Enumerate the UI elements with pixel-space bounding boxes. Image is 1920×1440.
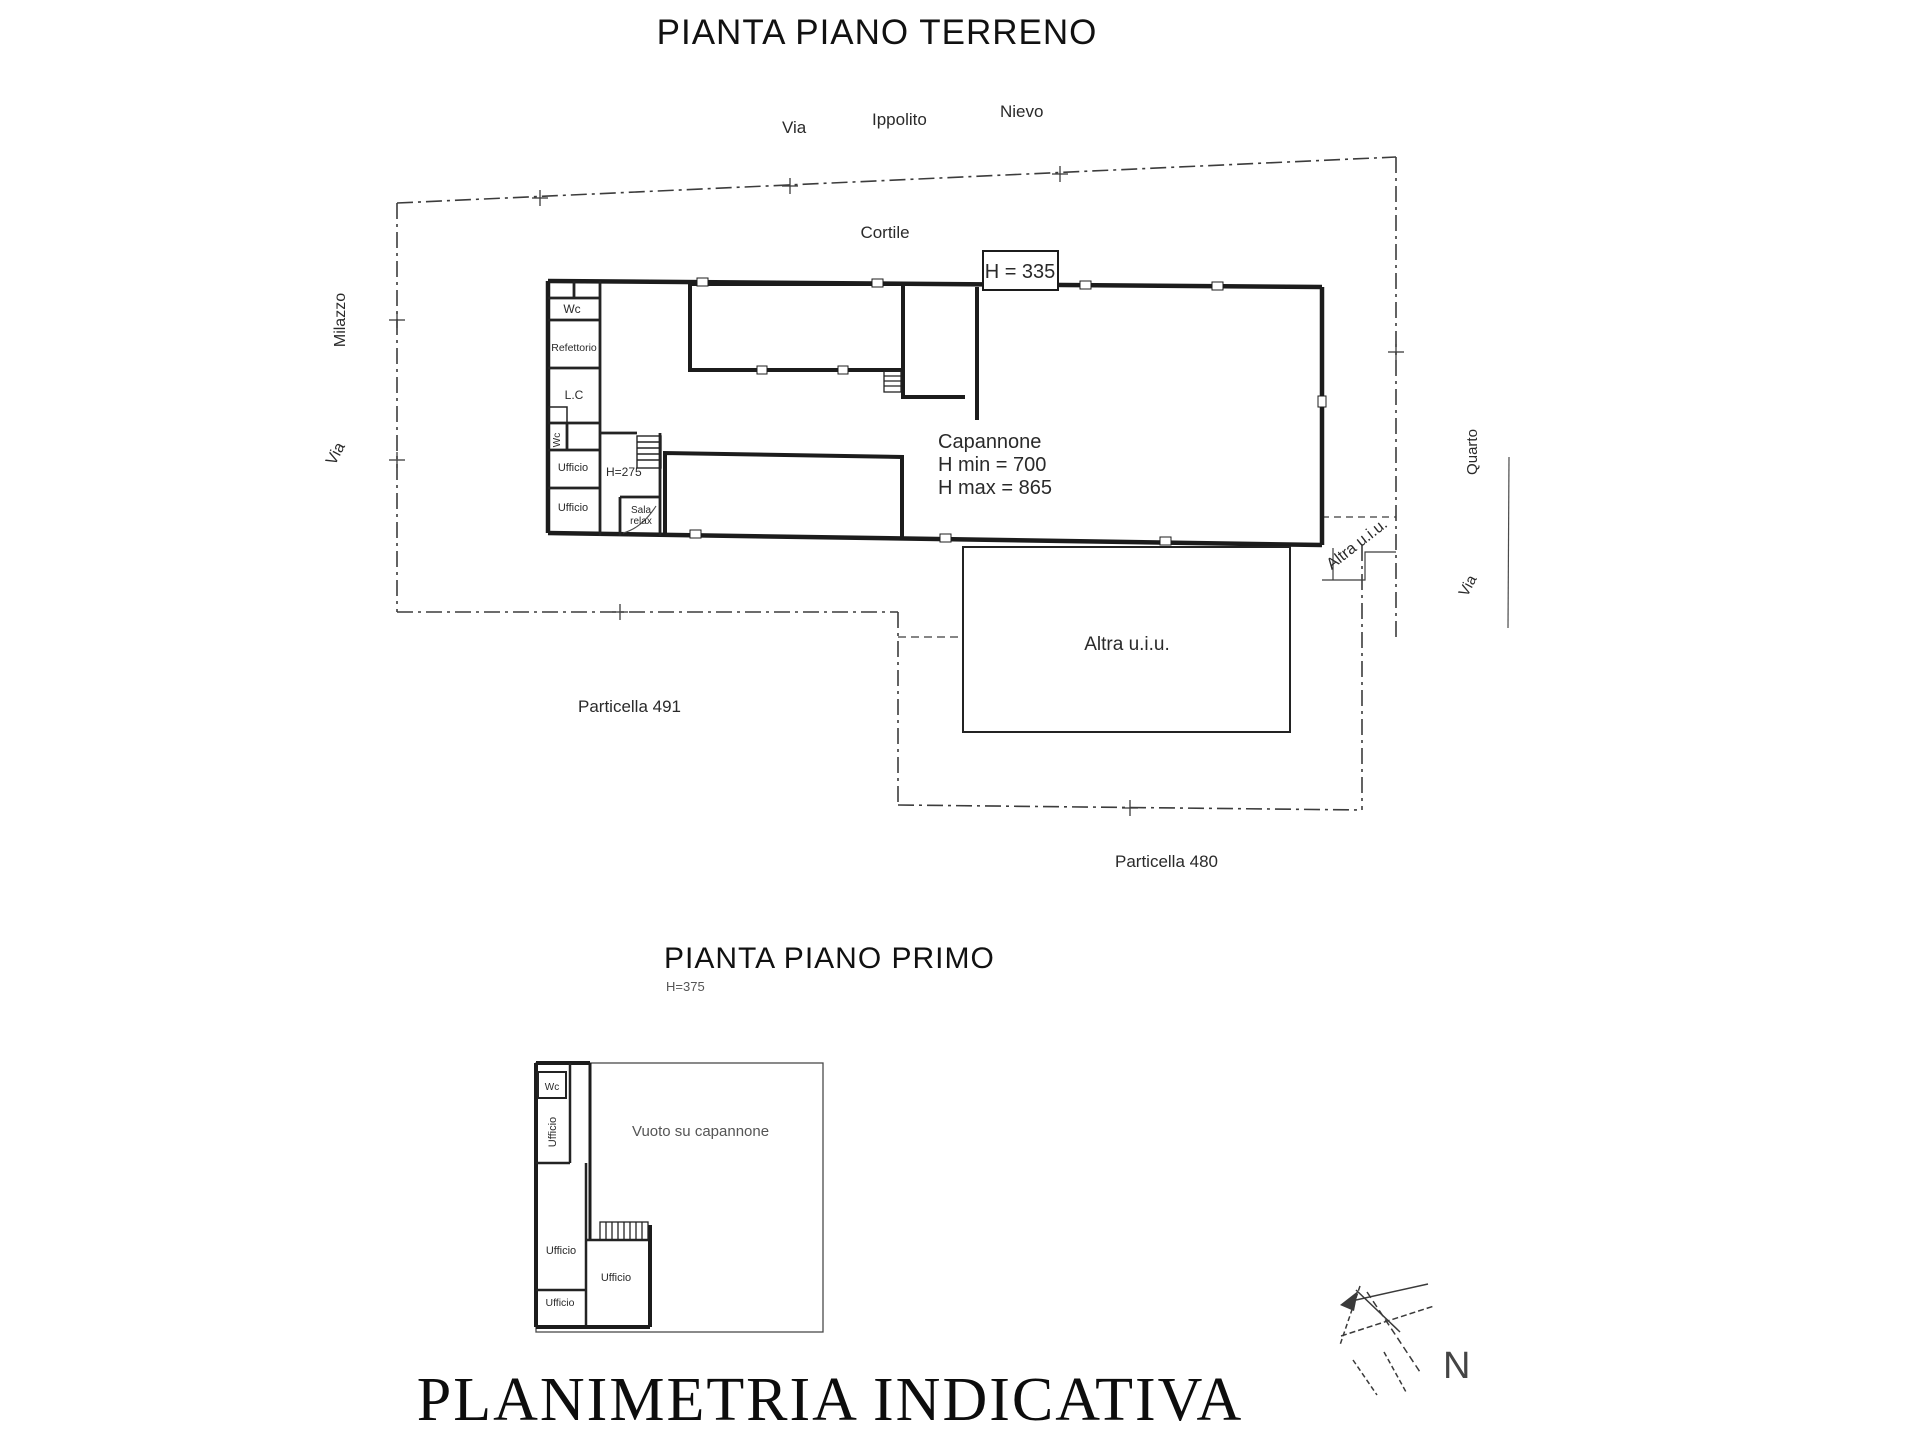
street-label-left: Milazzo Via: [323, 293, 349, 468]
opening-mark: [697, 278, 708, 286]
wc-mid-label: Wc: [552, 433, 563, 447]
street-right-via: Via: [1455, 572, 1480, 599]
tick-mark: [1388, 344, 1404, 360]
capannone-labels: Capannone H min = 700 H max = 865: [938, 431, 1052, 499]
opening-mark: [1212, 282, 1223, 290]
street-left-name: Milazzo: [332, 293, 349, 347]
floor-plan-scan: PIANTA PIANO TERRENO Via Ippolito Nievo: [0, 0, 1920, 1440]
tick-mark: [389, 312, 405, 328]
building-top-wall: [548, 281, 1322, 287]
survey-ticks: [389, 166, 1404, 816]
sketch-line: [1384, 1352, 1406, 1392]
inner-l-wall: [903, 370, 965, 397]
ff-ufficio-bottom-label: Ufficio: [546, 1297, 575, 1309]
ff-vuoto-label: Vuoto su capannone: [632, 1123, 769, 1140]
ff-ufficio-left-label: Ufficio: [546, 1245, 576, 1257]
tick-mark: [389, 452, 405, 468]
sala-relax-label-1: Sala: [631, 505, 651, 516]
wc-top-label: Wc: [563, 302, 580, 316]
opening-mark: [1318, 396, 1326, 407]
sketch-line: [1356, 1290, 1400, 1332]
altra-uiu-large-label: Altra u.i.u.: [1084, 634, 1170, 655]
north-arrow-sketch: N: [1340, 1284, 1470, 1395]
lc-label: L.C: [565, 388, 584, 402]
first-floor-title: PIANTA PIANO PRIMO: [664, 942, 995, 975]
stair-first-floor: [600, 1222, 648, 1240]
opening-mark: [872, 279, 883, 287]
north-arrowhead: [1340, 1291, 1358, 1311]
wall-openings: [690, 278, 1326, 545]
capannone-hmin: H min = 700: [938, 454, 1046, 476]
void-outline: [536, 1063, 823, 1332]
street-label-top: Via Ippolito Nievo: [782, 102, 1043, 137]
stair-small: [884, 371, 901, 392]
street-centerline: [1508, 457, 1509, 628]
sketch-line: [1341, 1306, 1434, 1336]
h275-label: H=275: [606, 465, 642, 479]
stair-box: [637, 436, 661, 468]
opening-mark: [757, 366, 767, 374]
tick-mark: [612, 604, 628, 620]
stair-ground: [637, 436, 661, 468]
particella-491-label: Particella 491: [578, 697, 681, 716]
closet: [549, 407, 567, 423]
cortile-label: Cortile: [860, 223, 909, 242]
first-floor-height: H=375: [666, 979, 705, 994]
particella-480-label: Particella 480: [1115, 852, 1218, 871]
first-floor-walls: [536, 1063, 650, 1327]
sketch-line: [1353, 1360, 1377, 1395]
sala-relax-label-2: relax: [630, 516, 652, 527]
office-partitions-ground: [548, 281, 660, 536]
inner-block-upper: [690, 284, 903, 370]
capannone-structures: [665, 284, 977, 540]
ff-ufficio-right-label: Ufficio: [601, 1272, 631, 1284]
capannone-hmax: H max = 865: [938, 477, 1052, 499]
ufficio1-label: Ufficio: [558, 462, 588, 474]
tick-mark: [1122, 800, 1138, 816]
street-left-via: Via: [323, 440, 349, 468]
street-top-ippolito: Ippolito: [872, 110, 927, 129]
ufficio2-label: Ufficio: [558, 502, 588, 514]
height-annotation-box: H = 335: [983, 251, 1058, 290]
opening-mark: [838, 366, 848, 374]
tick-mark: [782, 178, 798, 194]
street-top-nievo: Nievo: [1000, 102, 1043, 121]
opening-mark: [690, 530, 701, 538]
north-letter: N: [1443, 1345, 1470, 1387]
street-label-right: Quarto Via: [1455, 429, 1509, 628]
first-floor-plan: Wc Ufficio Vuoto su capannone Ufficio Uf…: [536, 1063, 823, 1332]
opening-mark: [940, 534, 951, 542]
h335-label: H = 335: [985, 261, 1056, 283]
capannone-label: Capannone: [938, 431, 1041, 453]
tick-mark: [1052, 166, 1068, 182]
footer-title: PLANIMETRIA INDICATIVA: [417, 1366, 1243, 1434]
street-top-via: Via: [782, 118, 807, 137]
ff-wc-label: Wc: [545, 1082, 559, 1093]
sketch-line: [1367, 1292, 1420, 1372]
street-right-name: Quarto: [1464, 429, 1481, 475]
altra-uiu-small-label: Altra u.i.u.: [1324, 516, 1391, 574]
opening-mark: [1160, 537, 1171, 545]
boundary-top: [397, 157, 1396, 203]
ground-floor-title: PIANTA PIANO TERRENO: [657, 13, 1098, 52]
tick-mark: [532, 190, 548, 206]
ff-ufficio-top-label: Ufficio: [547, 1117, 559, 1147]
refettorio-label: Refettorio: [551, 342, 597, 354]
inner-block-lower: [665, 453, 902, 540]
room-labels-first: Wc Ufficio Vuoto su capannone Ufficio Uf…: [545, 1082, 769, 1309]
opening-mark: [1080, 281, 1091, 289]
